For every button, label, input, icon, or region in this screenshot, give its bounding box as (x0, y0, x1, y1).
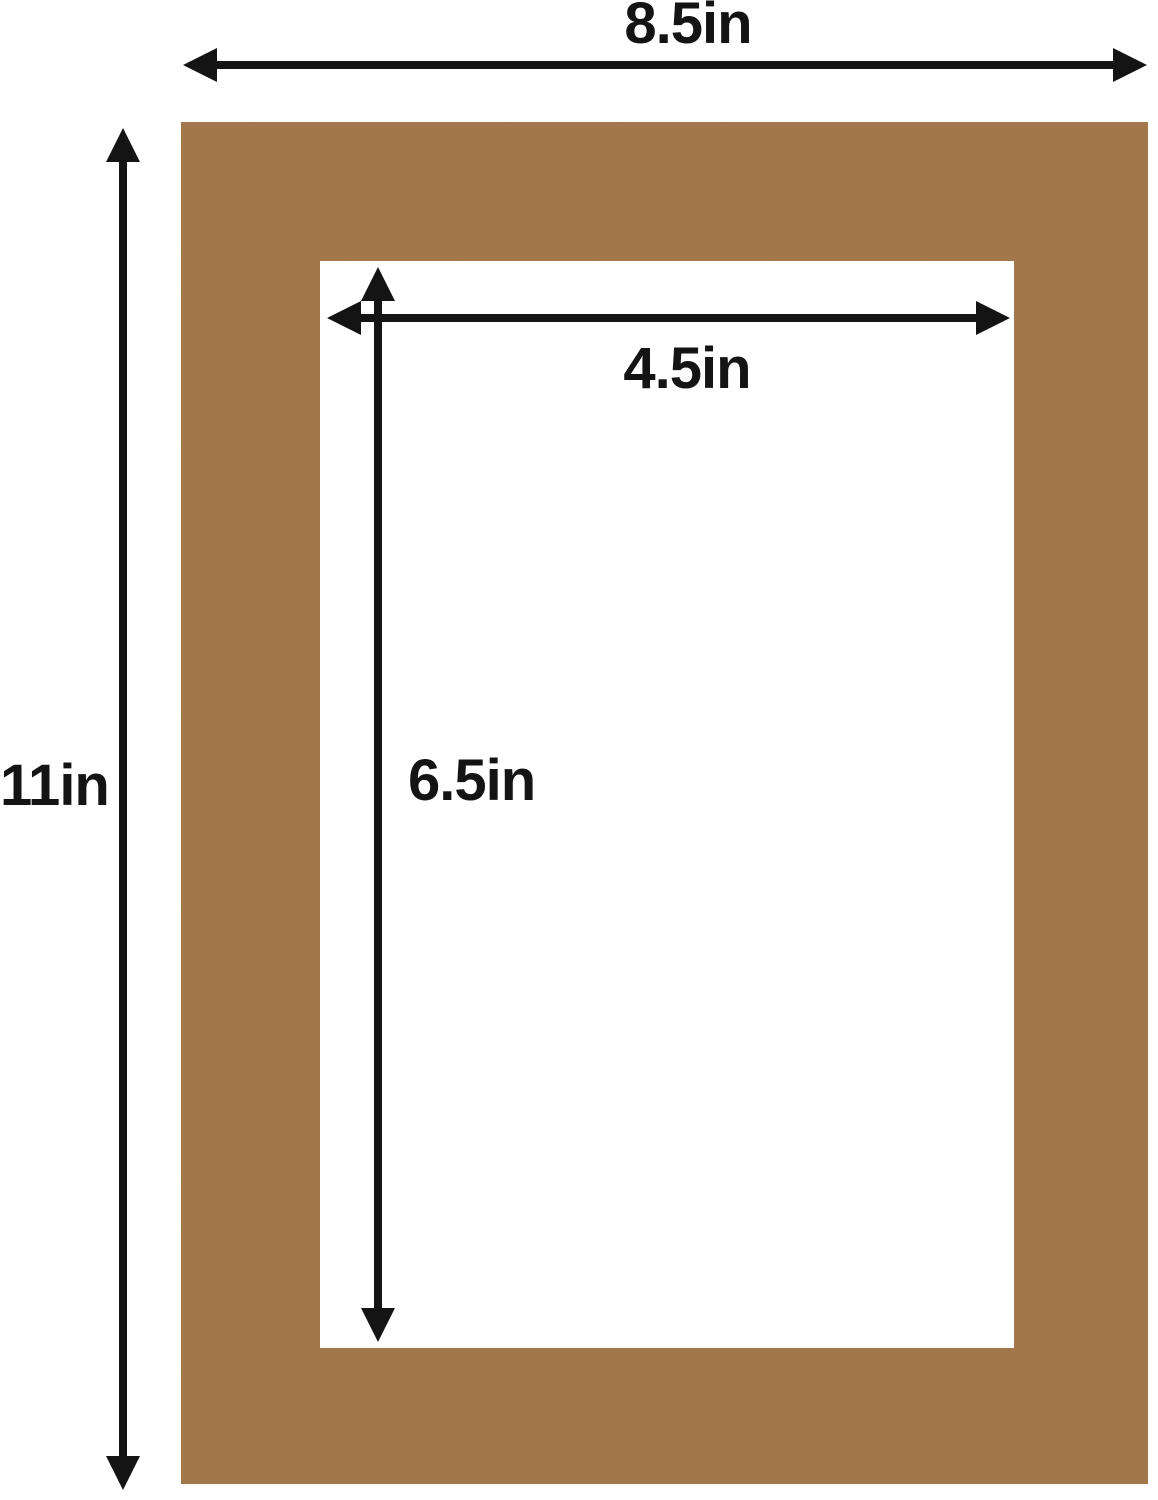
opening-width-label: 4.5in (623, 340, 750, 398)
mat-board (181, 122, 1148, 1484)
diagram-canvas: 8.5in 11in 4.5in 6.5in (0, 0, 1158, 1500)
opening-height-label: 6.5in (408, 752, 535, 810)
outer-width-label: 8.5in (624, 0, 751, 53)
outer-height-arrow (106, 128, 140, 1490)
outer-height-label: 11in (0, 757, 109, 815)
